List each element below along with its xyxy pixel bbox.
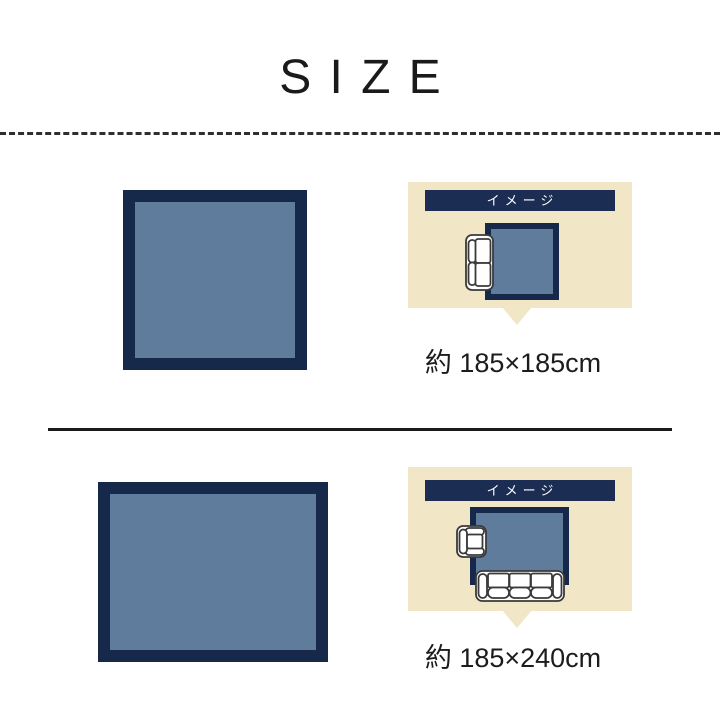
image-callout-header: イメージ [425,190,615,211]
rug-swatch-square [123,190,307,370]
size-label: 約 185×185cm [401,341,625,380]
image-callout-label: イメージ [487,193,559,208]
callout-tail [502,610,532,628]
size-label: 約 185×240cm [401,636,625,675]
armchair-icon [456,525,487,558]
image-callout-header: イメージ [425,480,615,501]
three-seat-sofa-icon [475,570,565,602]
image-callout: イメージ [408,182,632,308]
image-callout-label: イメージ [487,483,559,498]
rug-size-guide: SIZE イメージ 約 185×185cm イメージ [0,0,720,720]
mini-rug [485,223,559,300]
rug-swatch-rectangle [98,482,328,662]
two-seat-sofa-icon [465,234,494,291]
section-divider [48,428,672,431]
image-callout: イメージ [408,467,632,611]
page-title: SIZE [0,50,720,105]
callout-tail [502,307,532,325]
dashed-divider [0,132,720,135]
